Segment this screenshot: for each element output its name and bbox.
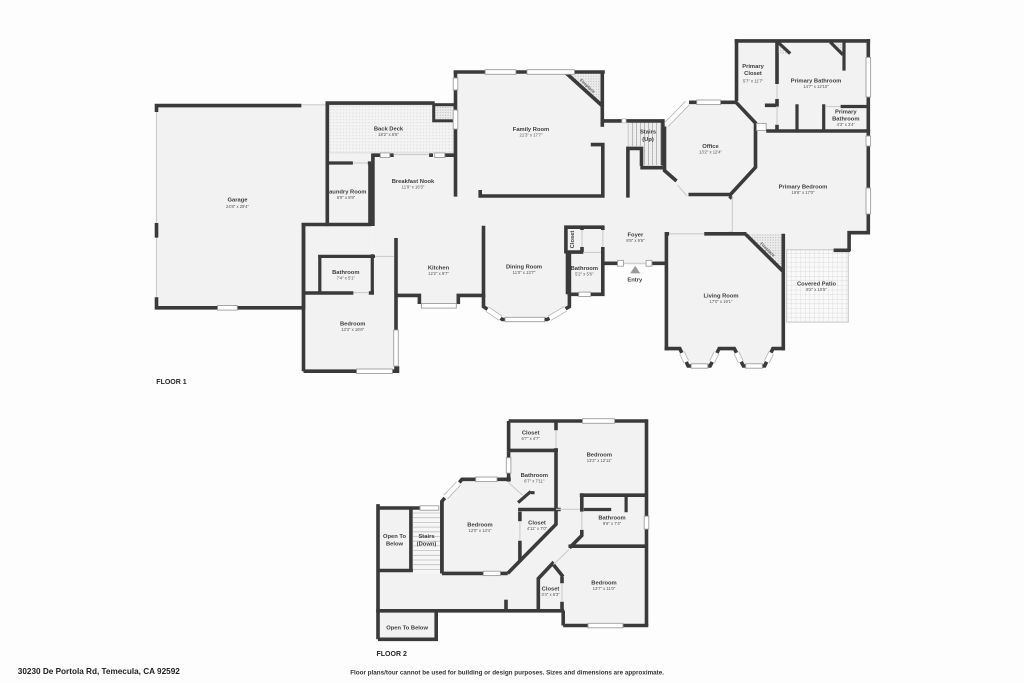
svg-text:FLOOR 1: FLOOR 1 <box>156 379 186 386</box>
svg-text:(Up): (Up) <box>642 137 654 143</box>
svg-text:Floor plans/tour cannot be use: Floor plans/tour cannot be used for buil… <box>350 670 664 677</box>
svg-text:14'7" x 12'10": 14'7" x 12'10" <box>803 84 829 89</box>
svg-text:Closet: Closet <box>570 231 576 249</box>
svg-text:18'2" x 8'6": 18'2" x 8'6" <box>378 132 399 137</box>
svg-text:9'6" x 7'4": 9'6" x 7'4" <box>603 521 622 526</box>
svg-text:Entry: Entry <box>627 278 643 284</box>
svg-text:6'7" x 4'7": 6'7" x 4'7" <box>522 436 541 441</box>
svg-text:30230 De Portola Rd, Temecula,: 30230 De Portola Rd, Temecula, CA 92592 <box>18 667 180 676</box>
svg-text:Closet: Closet <box>744 71 762 77</box>
svg-text:6'7" x 7'11": 6'7" x 7'11" <box>524 479 545 484</box>
svg-text:Primary: Primary <box>742 64 764 70</box>
svg-text:6'9" x 8'9": 6'9" x 8'9" <box>337 195 356 200</box>
svg-text:13'2" x 12'11": 13'2" x 12'11" <box>587 458 612 463</box>
svg-text:Stairs: Stairs <box>418 534 434 540</box>
svg-text:12'2" x 9'7": 12'2" x 9'7" <box>428 271 449 276</box>
svg-text:Primary: Primary <box>835 110 857 116</box>
svg-text:Stairs: Stairs <box>640 130 656 136</box>
svg-text:5'2" x 5'6": 5'2" x 5'6" <box>575 272 594 277</box>
svg-text:13'7" x 11'0": 13'7" x 11'0" <box>593 586 616 591</box>
svg-text:Garage: Garage <box>228 198 249 204</box>
svg-text:24'8" x 29'4": 24'8" x 29'4" <box>226 204 249 209</box>
svg-text:8'8" x 9'6": 8'8" x 9'6" <box>626 238 645 243</box>
svg-text:13'2" x 12'4": 13'2" x 12'4" <box>699 150 722 155</box>
svg-text:Open To Below: Open To Below <box>386 626 428 632</box>
svg-text:Open To: Open To <box>383 534 407 540</box>
svg-text:3'4" x 6'3": 3'4" x 6'3" <box>541 592 560 597</box>
svg-text:FLOOR 2: FLOOR 2 <box>377 651 407 658</box>
svg-text:4'3" x 3'4": 4'3" x 3'4" <box>837 122 856 127</box>
svg-text:Below: Below <box>386 541 404 547</box>
svg-text:13'3" x 16'6": 13'3" x 16'6" <box>341 327 364 332</box>
svg-text:21'3" x 17'7": 21'3" x 17'7" <box>520 133 543 138</box>
svg-text:7'4" x 5'1": 7'4" x 5'1" <box>337 275 356 280</box>
svg-text:5'7" x 11'7": 5'7" x 11'7" <box>743 79 764 84</box>
svg-text:19'8" x 17'0": 19'8" x 17'0" <box>792 190 815 195</box>
svg-text:4'11" x 7'0": 4'11" x 7'0" <box>527 526 548 531</box>
svg-text:11'0" x 13'7": 11'0" x 13'7" <box>513 270 536 275</box>
svg-text:17'0" x 19'1": 17'0" x 19'1" <box>710 299 733 304</box>
svg-text:12'0" x 13'4": 12'0" x 13'4" <box>469 528 492 533</box>
svg-text:(Down): (Down) <box>417 541 437 547</box>
svg-text:11'9" x 16'3": 11'9" x 16'3" <box>402 185 425 190</box>
svg-text:9'2" x 10'5": 9'2" x 10'5" <box>806 287 827 292</box>
